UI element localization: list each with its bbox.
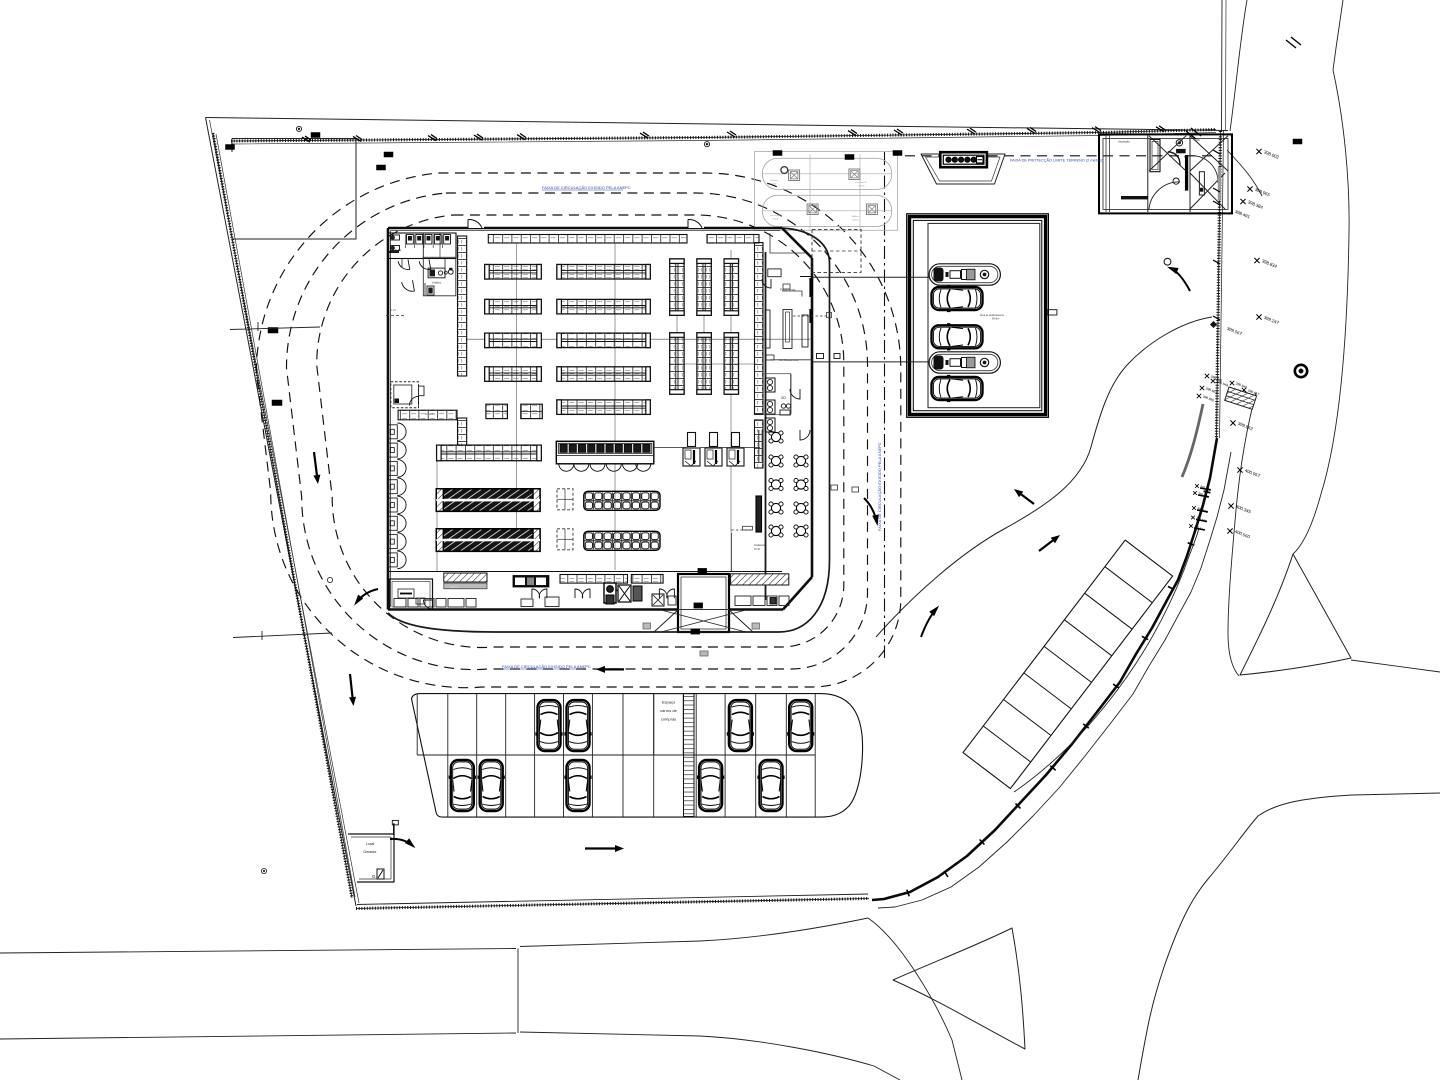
svg-text:99.4m²: 99.4m² [992, 318, 1000, 321]
svg-text:WC: WC [1196, 139, 1200, 142]
svg-text:AdBlue: AdBlue [852, 215, 860, 218]
svg-text:Aspiração: Aspiração [1118, 140, 1130, 144]
svg-text:D.T.E.: D.T.E. [395, 249, 402, 252]
svg-text:50.96: 50.96 [754, 548, 761, 551]
svg-text:10000 l: 10000 l [852, 219, 860, 221]
svg-text:1.23: 1.23 [391, 309, 396, 312]
svg-text:Espaço: Espaço [662, 700, 676, 705]
svg-text:30000 l: 30000 l [770, 183, 778, 185]
svg-text:Gerador: Gerador [363, 850, 377, 854]
svg-text:carros de: carros de [660, 708, 677, 713]
svg-text:Vestiário: Vestiário [432, 282, 442, 285]
svg-text:20000 l: 20000 l [858, 185, 866, 187]
svg-text:Cafetaria: Cafetaria [754, 543, 767, 547]
svg-text:Gasolina 98: Gasolina 98 [770, 215, 782, 217]
svg-text:15000 l: 15000 l [772, 218, 780, 220]
svg-text:Gasóleo: Gasóleo [770, 180, 779, 182]
svg-text:GD: GD [781, 396, 786, 400]
svg-text:48.10: 48.10 [695, 645, 702, 649]
svg-text:FAIXA DE PROTECÇÃO LIMITE TERR: FAIXA DE PROTECÇÃO LIMITE TERRENO (2 met… [1010, 158, 1104, 163]
svg-text:Armazém: Armazém [425, 413, 435, 416]
svg-text:FAIXA DE CIRCULAÇÃO EXIGIDO PE: FAIXA DE CIRCULAÇÃO EXIGIDO PELA ANEPC [542, 185, 631, 190]
svg-text:FAIXA DE CIRCULAÇÃO EXIGIDO PE: FAIXA DE CIRCULAÇÃO EXIGIDO PELA ANEPC [502, 664, 591, 669]
svg-text:Gasolina 95: Gasolina 95 [855, 182, 867, 184]
svg-text:Depósito: Depósito [450, 586, 459, 589]
svg-text:Local: Local [366, 842, 375, 846]
svg-text:G: G [372, 874, 376, 879]
svg-text:compras: compras [661, 717, 676, 722]
